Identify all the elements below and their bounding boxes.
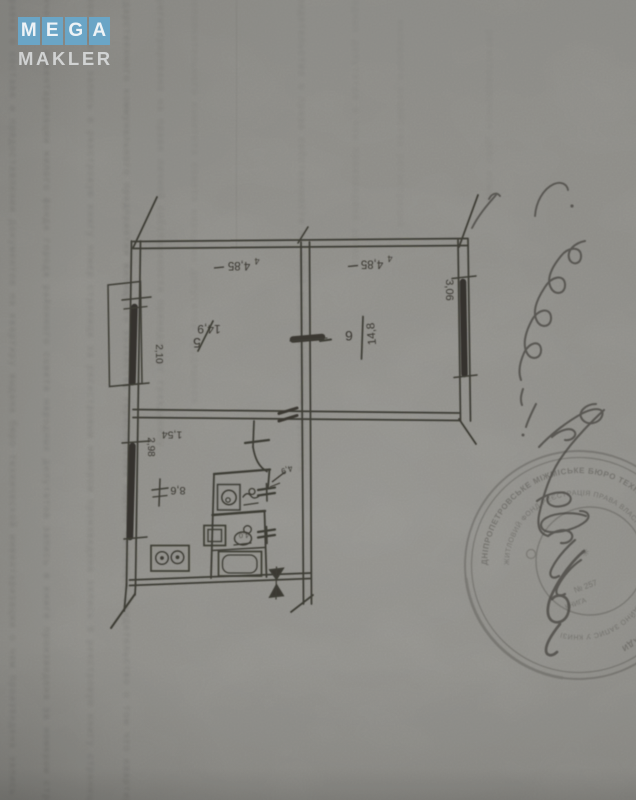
svg-text:4: 4 bbox=[254, 256, 259, 266]
svg-text:1,54: 1,54 bbox=[162, 429, 183, 441]
svg-text:4,85: 4,85 bbox=[228, 259, 250, 271]
svg-text:государственного коммунального: государственного коммунального предприят… bbox=[121, 0, 132, 800]
svg-text:справка о составе и предоставл: справка о составе и предоставлении докум… bbox=[7, 0, 18, 800]
svg-text:зарегистрировано на праве личн: зарегистрировано на праве личной собстве… bbox=[155, 0, 166, 447]
svg-text:8,6: 8,6 bbox=[170, 484, 185, 496]
svg-text:произведена запись в реестрову: произведена запись в реестровую книгу но… bbox=[85, 0, 96, 800]
svg-text:4,85: 4,85 bbox=[361, 258, 383, 270]
svg-text:6: 6 bbox=[345, 328, 353, 344]
svg-text:жилищного хозяйства регистраци: жилищного хозяйства регистрация bbox=[395, 20, 406, 228]
svg-text:4,0: 4,0 bbox=[239, 531, 249, 540]
svg-text:народных депутатов о чем произ: народных депутатов о чем произведена зап… bbox=[350, 0, 361, 268]
svg-text:2,10: 2,10 bbox=[153, 344, 164, 364]
svg-text:5: 5 bbox=[193, 335, 201, 351]
svg-text:14,9: 14,9 bbox=[197, 322, 221, 336]
svg-text:4: 4 bbox=[387, 254, 392, 264]
svg-text:регистрационное дело номер: регистрационное дело номер bbox=[484, 30, 495, 204]
svg-text:технической инвентаризации жил: технической инвентаризации жилого фонда … bbox=[41, 0, 52, 800]
svg-text:14,8: 14,8 bbox=[365, 322, 379, 345]
svg-text:3,06: 3,06 bbox=[443, 279, 455, 300]
svg-text:2,98: 2,98 bbox=[145, 437, 156, 457]
